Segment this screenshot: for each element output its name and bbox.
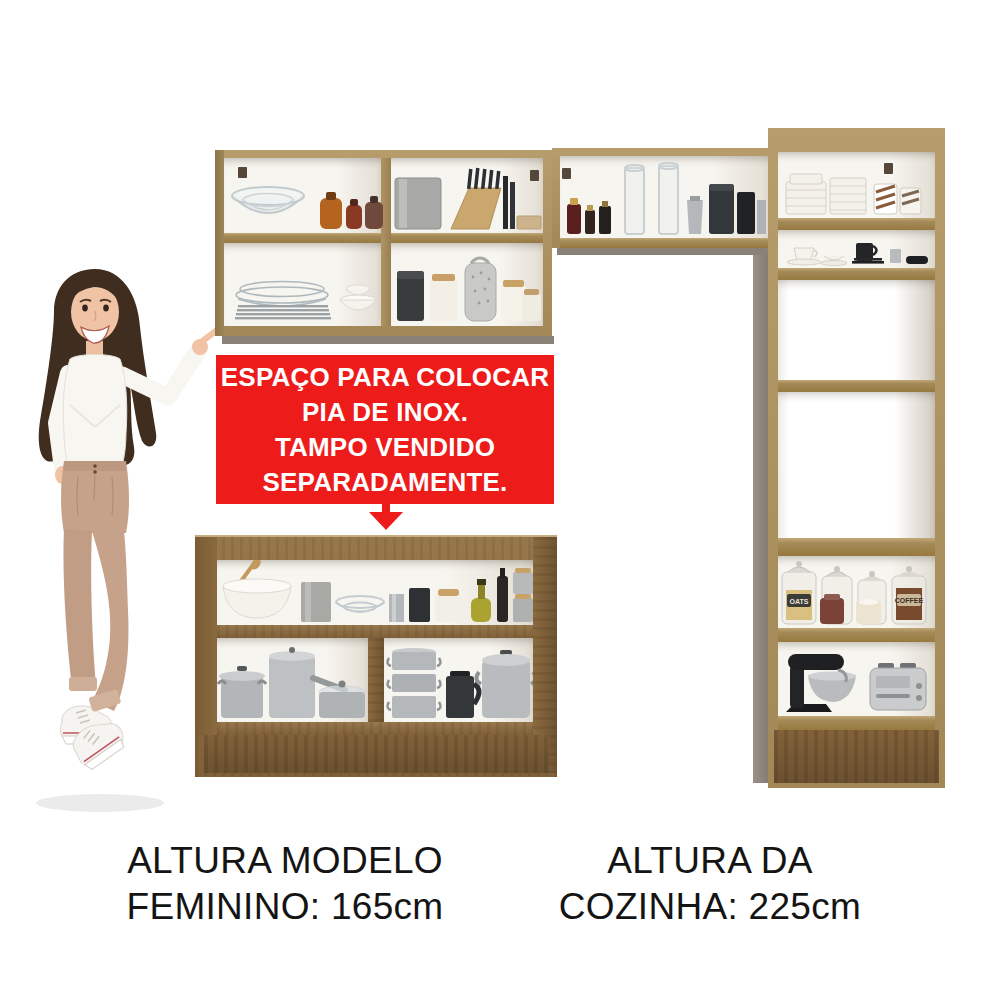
teacup-saucer (787, 248, 821, 265)
open-compartment (778, 280, 935, 380)
open-compartment (778, 392, 935, 538)
jar-label-coffee: COFFEE (895, 597, 924, 604)
black-canister (397, 271, 424, 321)
cabinet-side-panel (753, 255, 768, 783)
dark-kettle (446, 671, 479, 718)
caption-kitchen-height: ALTURA DA COZINHA: 225cm (500, 838, 920, 930)
steel-cup (890, 249, 901, 263)
cuff (69, 677, 97, 691)
shelf-items-dishes (778, 152, 935, 218)
banner-line: TAMPO VENDIDO (216, 430, 554, 465)
shelf-items-plates (224, 243, 386, 326)
knife-block (451, 168, 515, 229)
glass-plates (236, 282, 328, 307)
plate-stack (235, 305, 331, 319)
small-bottles (567, 198, 611, 234)
leg-front (92, 531, 128, 711)
shelf (778, 268, 935, 280)
oil-bottle (471, 579, 491, 622)
glass-cylinders (625, 163, 678, 234)
shelf-items-pantry: OATS COFFEE (778, 556, 935, 628)
pantry-jar-oats: OATS (782, 561, 816, 624)
dark-canister (409, 588, 430, 622)
eye (82, 305, 88, 312)
shelf-items-appliances (778, 642, 935, 716)
metal-tin (301, 582, 331, 622)
shelf (778, 628, 935, 642)
caption-line: FEMININO: 165cm (60, 884, 510, 930)
mixing-bowl (223, 560, 291, 618)
info-banner: ESPAÇO PARA COLOCAR PIA DE INOX. TAMPO V… (216, 355, 554, 504)
shelf-items-bowls-jars (224, 158, 386, 233)
pantry-jar-coffee: COFFEE (892, 566, 926, 624)
grater (465, 258, 496, 321)
wooden-box (517, 216, 541, 229)
caption-line: ALTURA MODELO (60, 838, 510, 884)
caption-model-height: ALTURA MODELO FEMININO: 165cm (60, 838, 510, 930)
white-canister (430, 274, 457, 321)
steel-canisters (513, 568, 533, 622)
cabinet-underside (557, 248, 770, 255)
shelf-items-glassware (563, 156, 766, 236)
stockpot (476, 650, 533, 718)
shelf (778, 380, 935, 392)
shelf-items-knifeblock (391, 158, 543, 233)
shelf-items-pots-left (217, 638, 368, 722)
lidded-pot (218, 666, 266, 718)
small-bowl (821, 256, 847, 266)
toaster (870, 663, 926, 710)
banner-line: PIA DE INOX. (216, 395, 554, 430)
spice-jars (320, 192, 383, 229)
cabinet-plinth (204, 735, 549, 773)
metal-box (757, 200, 766, 234)
divider (368, 638, 384, 722)
shelf-items-canisters (391, 243, 543, 326)
banner-line: ESPAÇO PARA COLOCAR (216, 360, 554, 395)
glass-bowls (232, 187, 304, 213)
cabinet-floor (217, 722, 533, 735)
shelf (560, 238, 770, 248)
pantry-jar (820, 566, 852, 624)
cabinet-floor (778, 716, 935, 730)
white-bowls (340, 285, 376, 310)
cabinet-plinth (774, 730, 939, 783)
glass-bowls (336, 596, 384, 612)
jar-label-oats: OATS (790, 598, 809, 605)
shelf-items-pots-right (384, 638, 533, 722)
storage-jars (501, 280, 541, 321)
pantry-jar (856, 571, 886, 624)
cabinet-underside (222, 336, 554, 344)
button (93, 464, 97, 468)
stand-mixer (786, 654, 856, 712)
caption-line: ALTURA DA (500, 838, 920, 884)
steel-cup (389, 594, 404, 622)
leg-back (63, 529, 96, 687)
down-arrow-head (369, 512, 403, 530)
shelf (217, 625, 533, 638)
shelf-items-cups (778, 230, 935, 268)
glass-lid-casserole (319, 681, 365, 719)
metal-tin (395, 178, 441, 229)
metal-pitcher (687, 196, 703, 234)
dark-canisters (709, 184, 755, 234)
banner-line: SEPARADAMENTE. (216, 465, 554, 500)
caption-line: COZINHA: 225cm (500, 884, 920, 930)
floor-shadow (36, 794, 164, 812)
steamer-stack (387, 648, 440, 718)
shelf (778, 538, 935, 556)
dark-bottle (497, 568, 508, 622)
shelf (778, 218, 935, 230)
button (93, 470, 97, 474)
shelf-items-prep (217, 560, 534, 625)
black-dish (906, 256, 928, 264)
white-jar (435, 589, 462, 622)
down-arrow-icon (382, 499, 390, 513)
striped-mugs (874, 184, 921, 214)
product-image: OATS COFFEE (0, 0, 1000, 1000)
eye (103, 305, 109, 312)
